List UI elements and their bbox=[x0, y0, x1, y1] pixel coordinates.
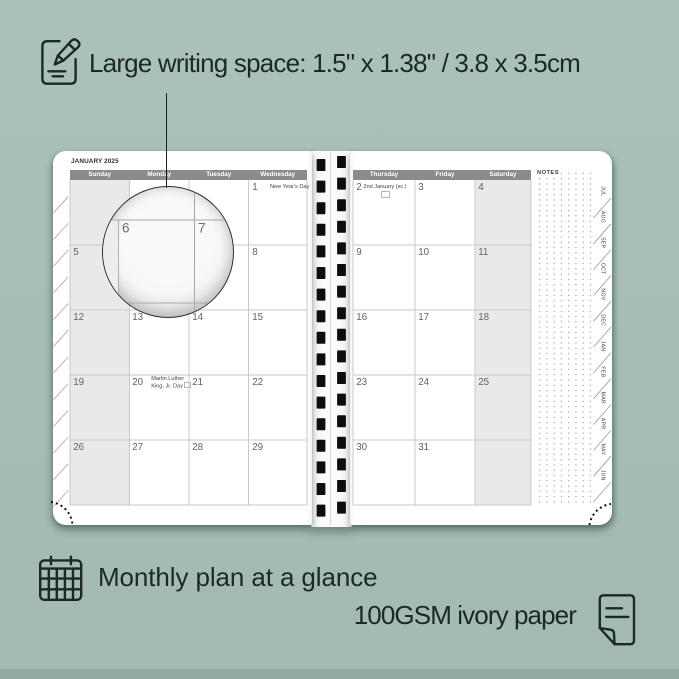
svg-text:6: 6 bbox=[122, 221, 130, 236]
svg-text:AUG: AUG bbox=[600, 211, 606, 223]
svg-text:MAY: MAY bbox=[600, 444, 606, 456]
svg-text:7: 7 bbox=[198, 221, 206, 236]
svg-text:JUL: JUL bbox=[600, 186, 606, 196]
svg-text:FEB: FEB bbox=[600, 366, 606, 377]
svg-text:APR: APR bbox=[600, 418, 606, 430]
svg-text:NOV: NOV bbox=[600, 288, 606, 300]
svg-text:JUN: JUN bbox=[600, 470, 606, 481]
svg-text:SEP: SEP bbox=[600, 237, 606, 249]
svg-text:JAN: JAN bbox=[600, 341, 606, 352]
svg-text:MAR: MAR bbox=[600, 392, 606, 404]
svg-text:DEC: DEC bbox=[600, 314, 606, 326]
svg-text:OCT: OCT bbox=[600, 263, 606, 275]
